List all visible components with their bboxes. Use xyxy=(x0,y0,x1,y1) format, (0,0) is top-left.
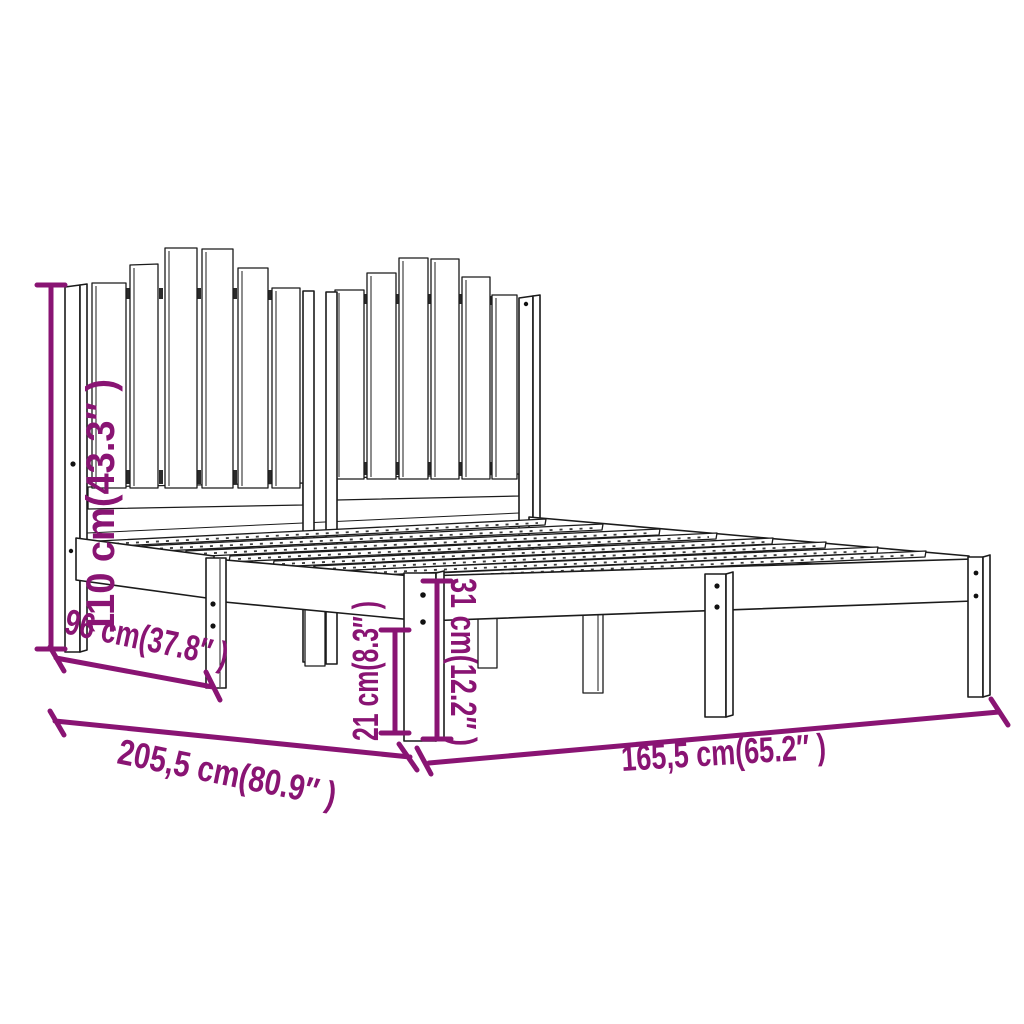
dim-headboard-height-label: 110 cm(43.3″ ) xyxy=(79,379,123,634)
dim-platform-height-label: 31 cm(12.2″ ) xyxy=(443,578,484,746)
dim-leg-height-label: 21 cm(8.3″ ) xyxy=(345,601,386,741)
dim-frame-length-label: 205,5 cm(80.9″ ) xyxy=(114,731,340,815)
bed-frame-dimension-drawing: 110 cm(43.3″ ) 96 cm(37.8″ ) 205,5 cm(80… xyxy=(0,0,1024,1024)
headboard-slats-right xyxy=(335,258,517,479)
dim-frame-width-label: 165,5 cm(65.2″ ) xyxy=(620,726,827,779)
dim-leg-height: 21 cm(8.3″ ) xyxy=(345,601,409,741)
dimension-diagram-canvas: 110 cm(43.3″ ) 96 cm(37.8″ ) 205,5 cm(80… xyxy=(0,0,1024,1024)
headboard-slats-left xyxy=(92,248,300,488)
